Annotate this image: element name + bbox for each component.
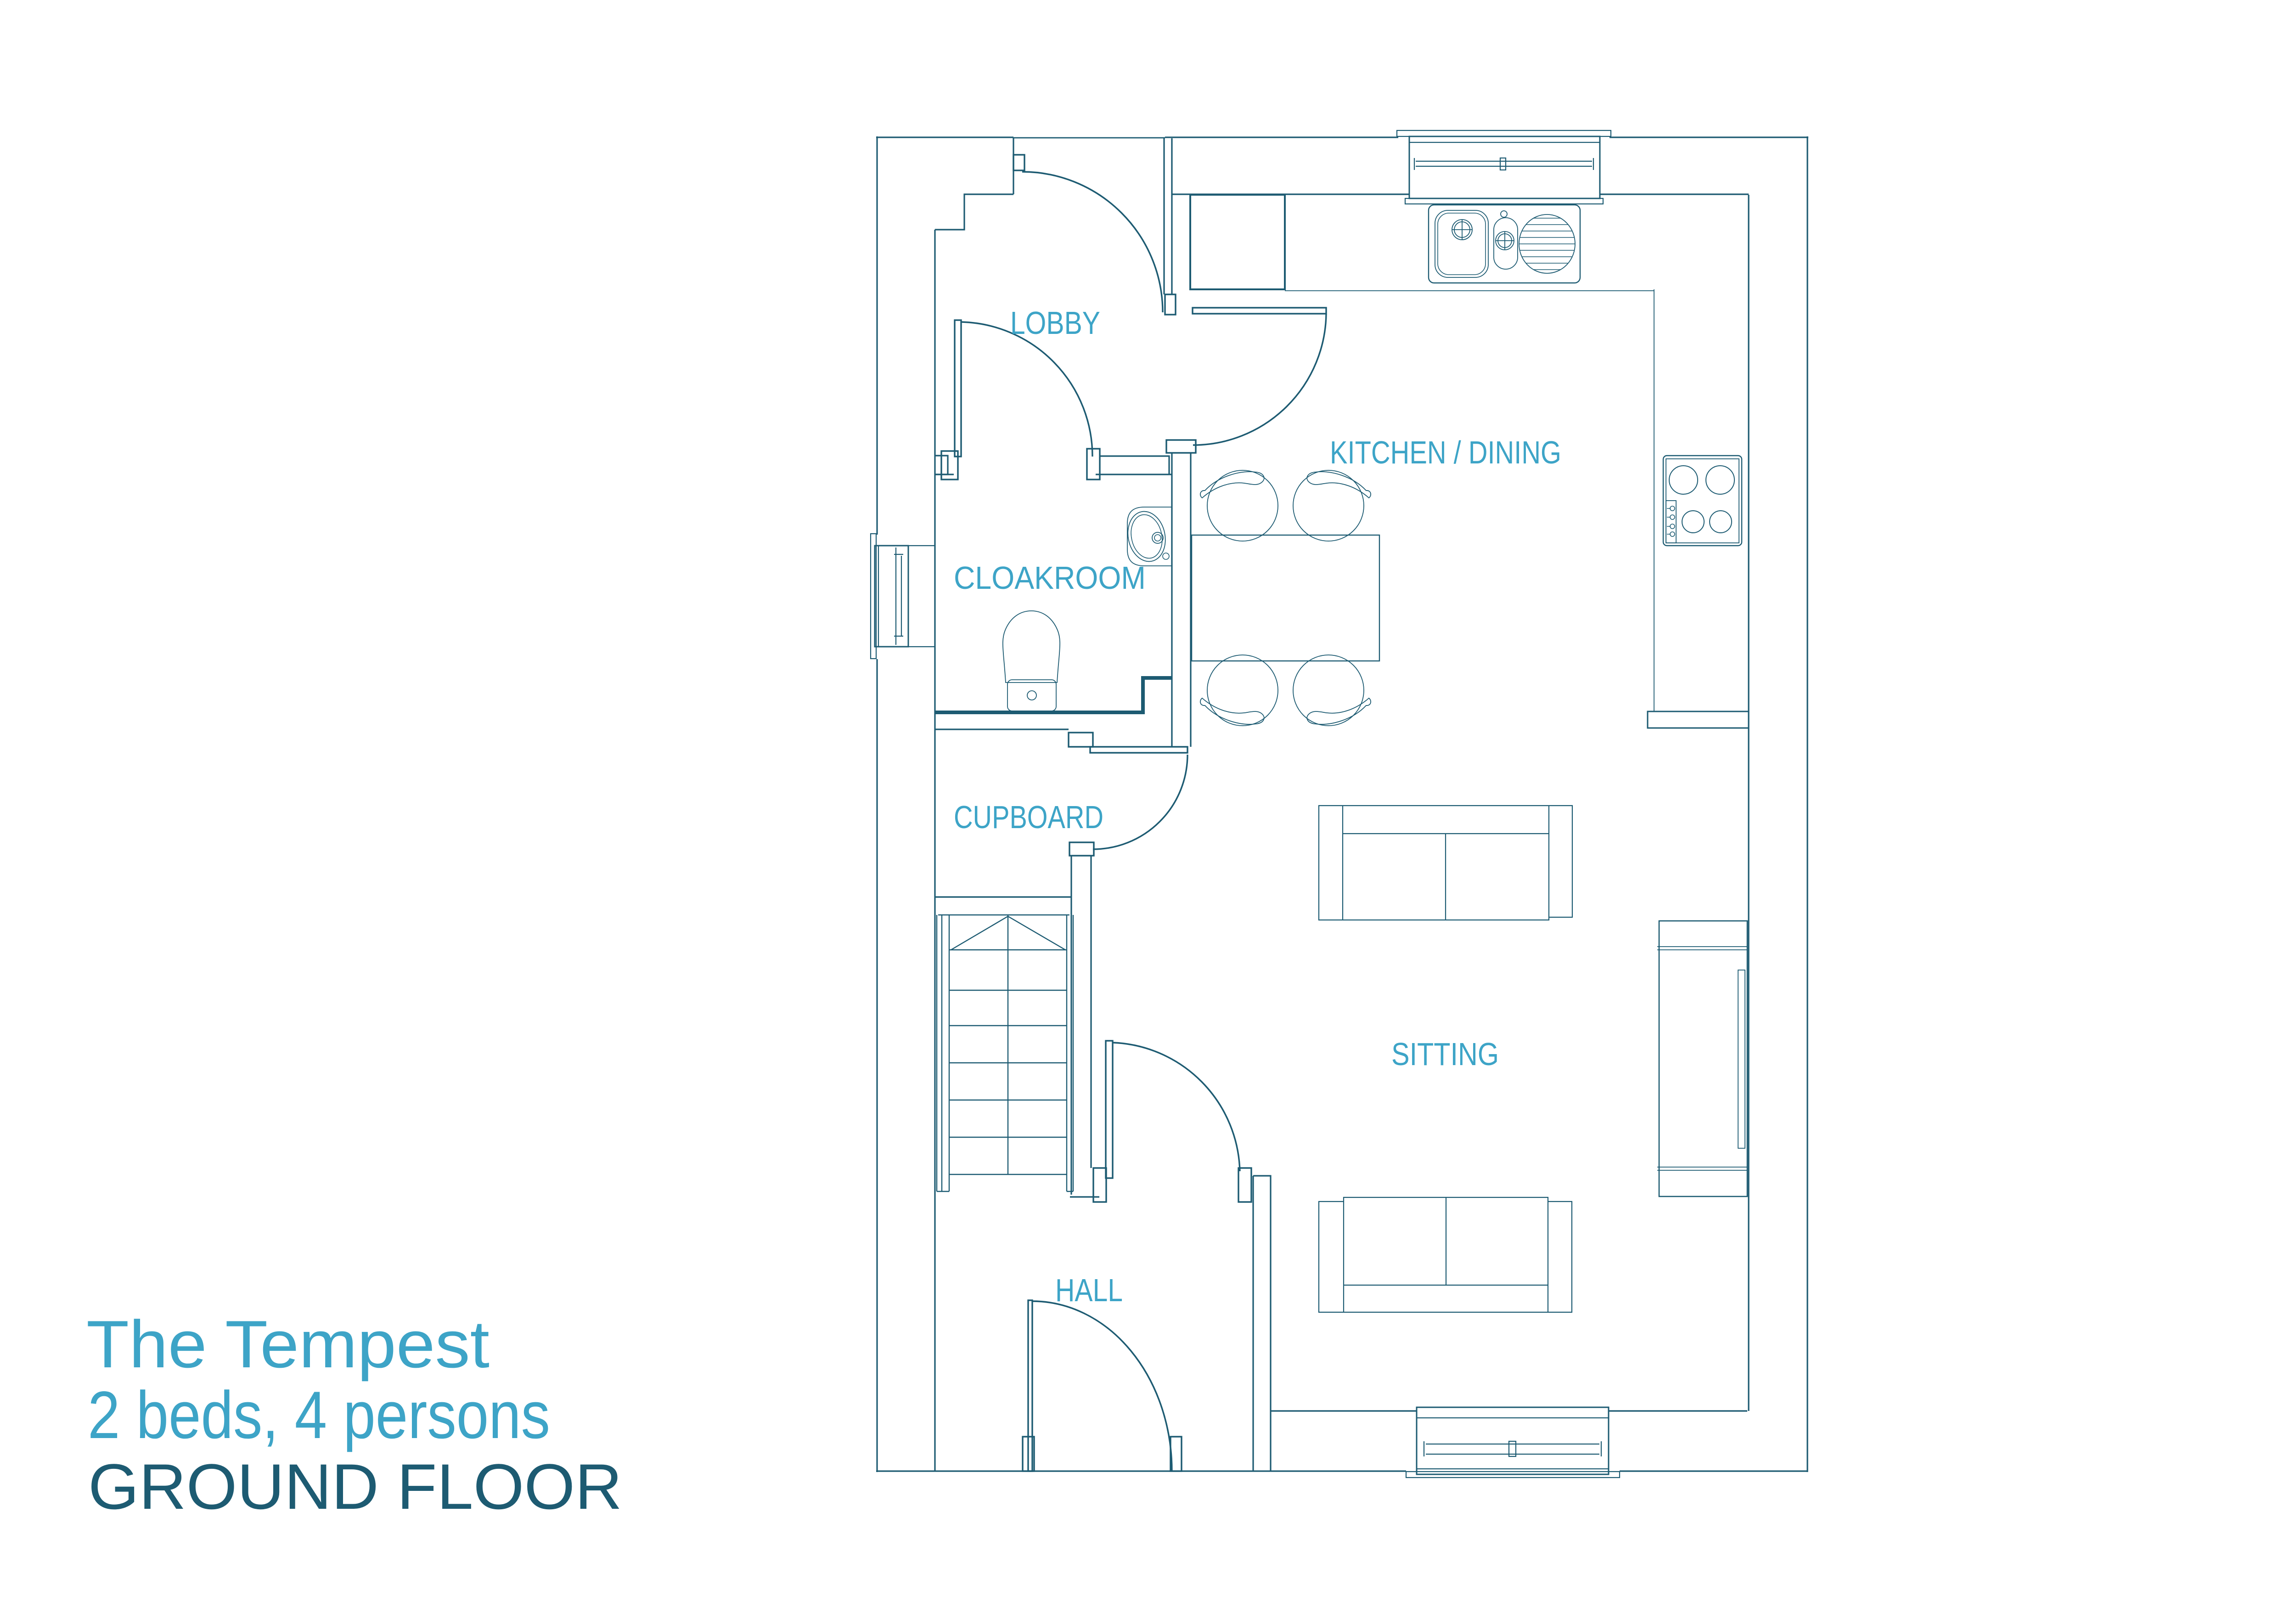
svg-text:2 beds, 4 persons: 2 beds, 4 persons	[88, 1377, 550, 1452]
svg-text:CLOAKROOM: CLOAKROOM	[954, 560, 1146, 596]
svg-text:GROUND FLOOR: GROUND FLOOR	[88, 1450, 622, 1523]
svg-text:LOBBY: LOBBY	[1010, 305, 1100, 341]
svg-text:HALL: HALL	[1055, 1272, 1123, 1308]
svg-text:CUPBOARD: CUPBOARD	[954, 799, 1103, 835]
svg-text:KITCHEN / DINING: KITCHEN / DINING	[1330, 434, 1561, 470]
svg-text:The Tempest: The Tempest	[86, 1307, 490, 1382]
svg-text:SITTING: SITTING	[1391, 1036, 1499, 1072]
